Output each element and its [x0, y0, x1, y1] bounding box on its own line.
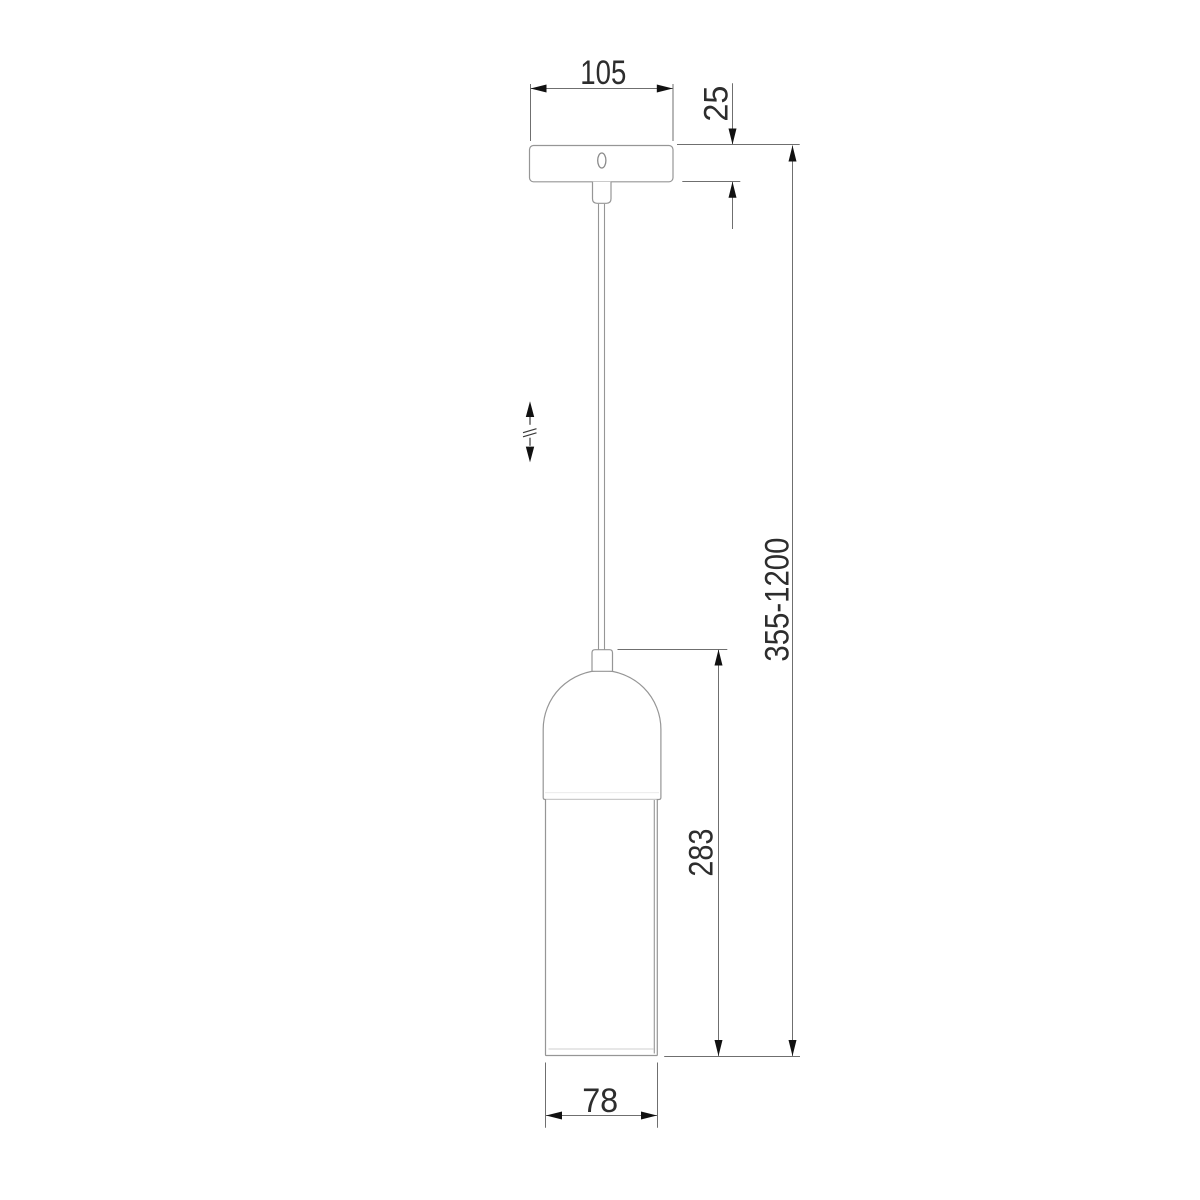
svg-text:355-1200: 355-1200	[759, 538, 797, 662]
svg-text:105: 105	[580, 54, 626, 92]
svg-text:25: 25	[697, 86, 735, 122]
svg-text:283: 283	[683, 829, 721, 877]
svg-text:78: 78	[582, 1082, 618, 1120]
